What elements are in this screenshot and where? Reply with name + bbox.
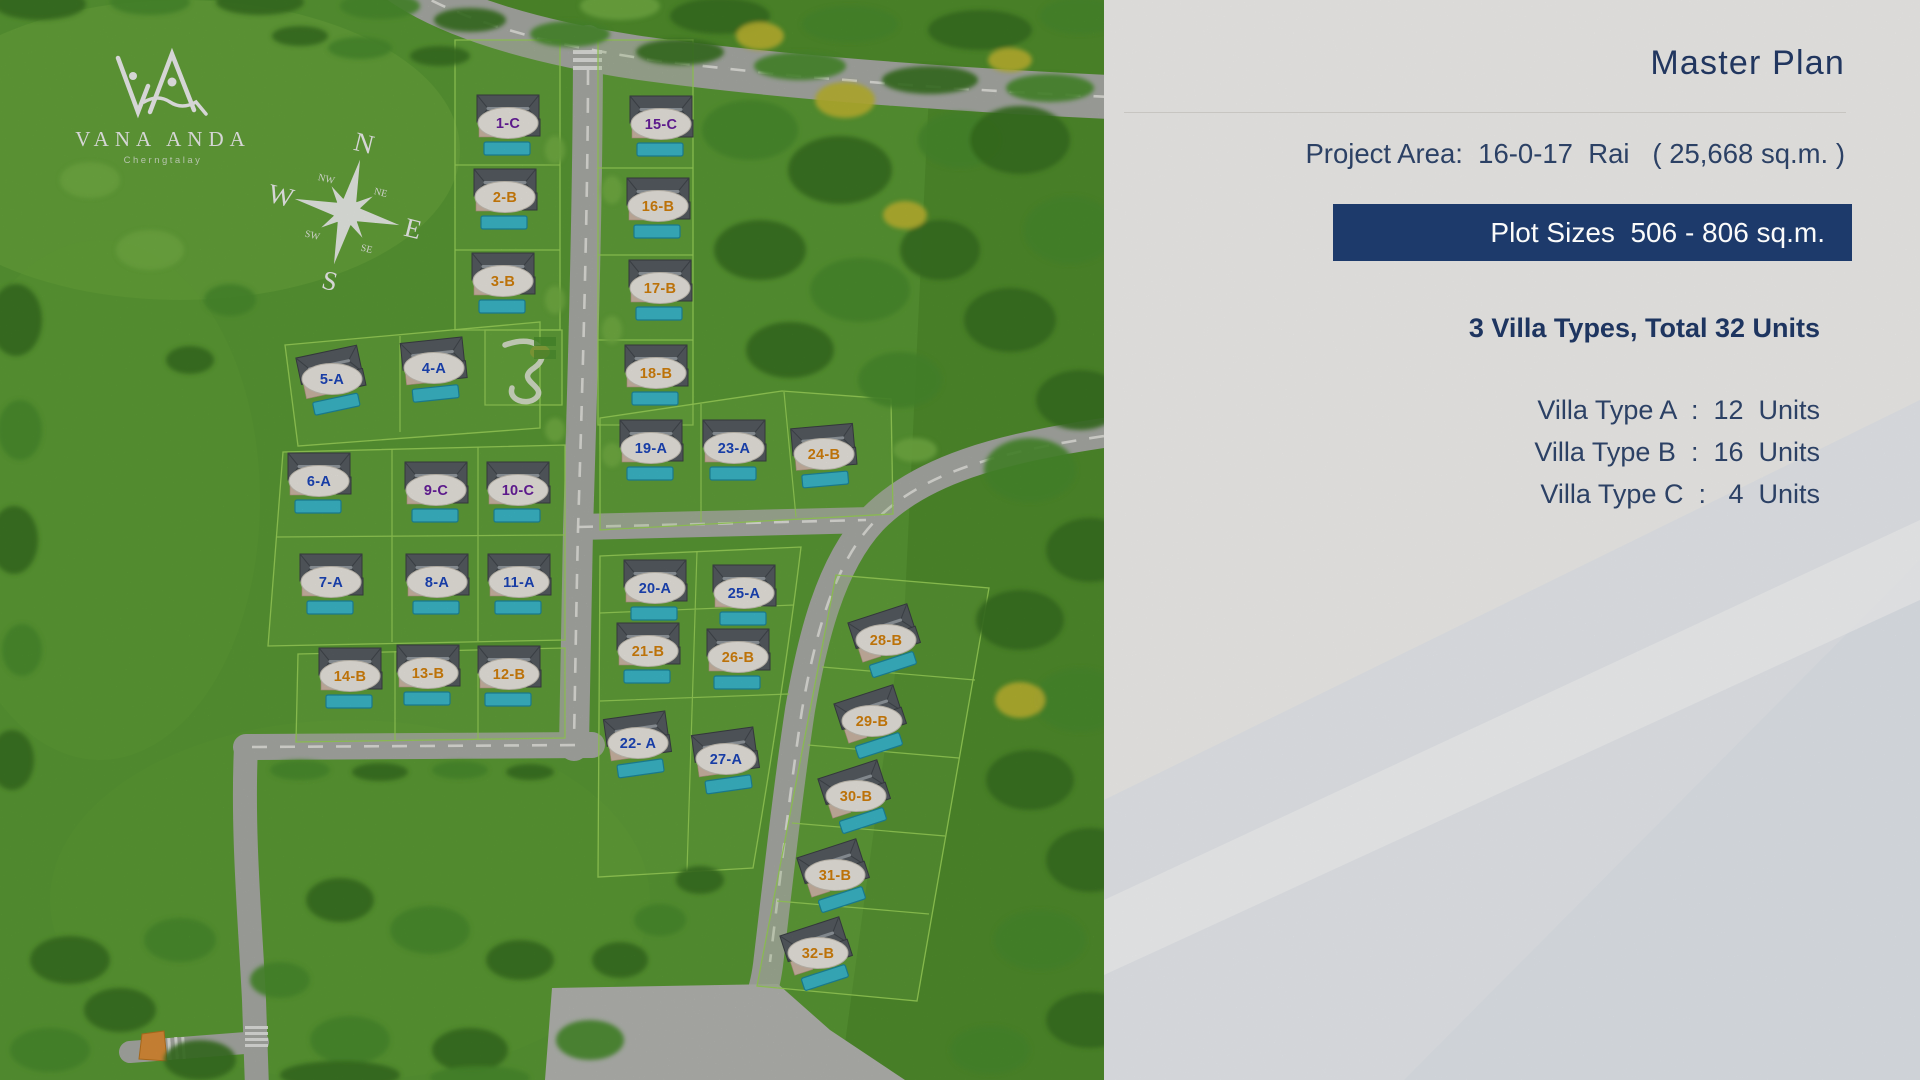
project-area-line: Project Area: 16-0-17 Rai ( 25,668 sq.m.… bbox=[1305, 138, 1845, 170]
master-plan-page: 1-C2-B3-B4-A5-A6-A7-A8-A9-C10-C11-A12-B1… bbox=[0, 0, 1920, 1080]
title-divider bbox=[1124, 112, 1846, 113]
plot-sizes-text: Plot Sizes 506 - 806 sq.m. bbox=[1333, 204, 1852, 261]
site-plan-map: 1-C2-B3-B4-A5-A6-A7-A8-A9-C10-C11-A12-B1… bbox=[0, 0, 1104, 1080]
villa-type-b-row: Villa Type B : 16 Units bbox=[1534, 431, 1820, 473]
plot-sizes-banner: Plot Sizes 506 - 806 sq.m. bbox=[1333, 204, 1852, 261]
villa-type-c-row: Villa Type C : 4 Units bbox=[1534, 473, 1820, 515]
page-title: Master Plan bbox=[1650, 44, 1845, 83]
info-panel: Master Plan Project Area: 16-0-17 Rai ( … bbox=[1104, 0, 1920, 1080]
site-plan-svg: 1-C2-B3-B4-A5-A6-A7-A8-A9-C10-C11-A12-B1… bbox=[0, 0, 1104, 1080]
map-texture bbox=[0, 0, 1104, 1080]
villa-type-list: Villa Type A : 12 Units Villa Type B : 1… bbox=[1534, 389, 1820, 515]
villa-type-a-row: Villa Type A : 12 Units bbox=[1534, 389, 1820, 431]
summary-heading: 3 Villa Types, Total 32 Units bbox=[1469, 313, 1820, 344]
